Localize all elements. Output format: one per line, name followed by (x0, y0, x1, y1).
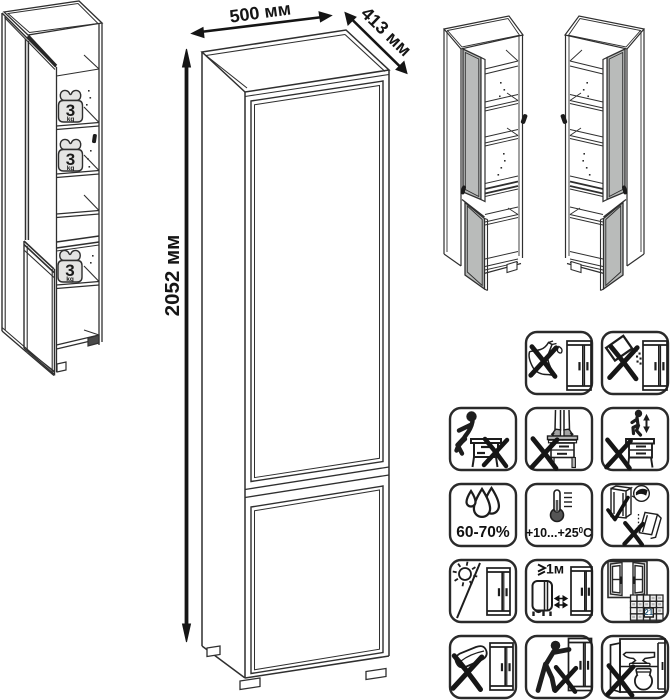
svg-text:+10...+250С: +10...+250С (526, 526, 592, 540)
svg-text:1м: 1м (546, 561, 564, 577)
svg-text:kg: kg (66, 276, 74, 283)
svg-text:2052 мм: 2052 мм (161, 235, 184, 317)
svg-text:60-70%: 60-70% (456, 524, 510, 541)
svg-text:kg: kg (67, 165, 75, 172)
svg-text:kg: kg (67, 116, 75, 123)
svg-text:21: 21 (644, 608, 653, 617)
